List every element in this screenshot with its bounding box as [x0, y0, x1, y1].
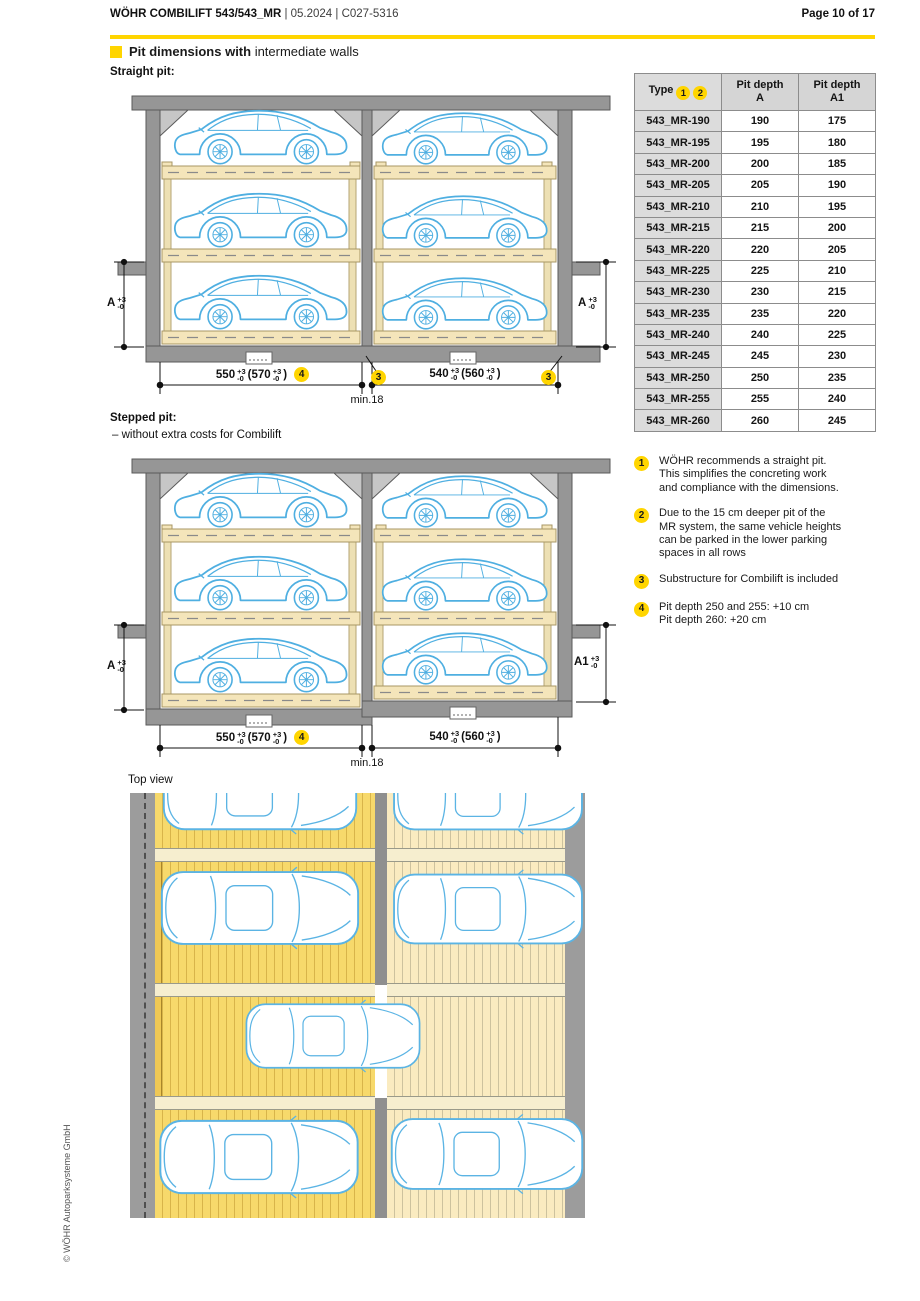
bullet-square-icon — [110, 46, 122, 58]
car-illustration — [175, 276, 347, 329]
cell-a: 255 — [722, 389, 799, 410]
cell-type: 543_MR-220 — [635, 239, 722, 260]
page-number: Page 10 of 17 — [801, 8, 875, 20]
cell-a1: 190 — [799, 175, 876, 196]
car-illustration — [175, 474, 347, 527]
straight-pit-drawing — [110, 84, 620, 414]
table-row: 543_MR-250250235 — [635, 367, 876, 388]
min-wall-thickness: min.18 — [337, 757, 397, 769]
stepped-pit-label: Stepped pit: — [110, 412, 176, 424]
car-illustration — [175, 194, 347, 247]
stepped-pit-drawing — [110, 447, 620, 777]
document-title-meta: | 05.2024 | C027-5316 — [281, 8, 398, 20]
cell-a: 200 — [722, 153, 799, 174]
straight-pit-diagram: A +3-0 A +3-0 550 +3-0 (570 +3-0 ) 4 540… — [110, 84, 620, 414]
stepped-pit-sublabel: – without extra costs for Combilift — [112, 429, 281, 441]
car-illustration — [383, 278, 547, 329]
car-illustration — [383, 559, 547, 610]
table-row: 543_MR-205205190 — [635, 175, 876, 196]
table-row: 543_MR-240240225 — [635, 324, 876, 345]
cell-type: 543_MR-260 — [635, 410, 722, 431]
document-title: WÖHR COMBILIFT 543/543_MR | 05.2024 | C0… — [110, 8, 398, 20]
table-row: 543_MR-190190175 — [635, 111, 876, 132]
table-row: 543_MR-210210195 — [635, 196, 876, 217]
cell-a: 230 — [722, 282, 799, 303]
table-row: 543_MR-245245230 — [635, 346, 876, 367]
cell-type: 543_MR-250 — [635, 367, 722, 388]
cell-type: 543_MR-210 — [635, 196, 722, 217]
car-illustration — [383, 633, 547, 684]
cell-a1: 220 — [799, 303, 876, 324]
note-2: 2 Due to the 15 cm deeper pit of the MR … — [634, 507, 850, 561]
cell-a: 260 — [722, 410, 799, 431]
page-header: WÖHR COMBILIFT 543/543_MR | 05.2024 | C0… — [110, 8, 875, 20]
car-illustration — [175, 639, 347, 692]
cell-a1: 180 — [799, 132, 876, 153]
cell-type: 543_MR-205 — [635, 175, 722, 196]
table-row: 543_MR-260260245 — [635, 410, 876, 431]
cell-type: 543_MR-215 — [635, 217, 722, 238]
cell-type: 543_MR-190 — [635, 111, 722, 132]
dim-bay-width-left: 550 +3-0 (570 +3-0 ) 4 — [165, 730, 360, 745]
dim-bay-width-left: 550 +3-0 (570 +3-0 ) 4 — [165, 367, 360, 382]
cars — [175, 111, 547, 329]
cell-a: 210 — [722, 196, 799, 217]
table-row: 543_MR-235235220 — [635, 303, 876, 324]
callout-4: 4 — [294, 730, 309, 745]
cell-a1: 205 — [799, 239, 876, 260]
callout-2: 2 — [693, 86, 707, 100]
cell-a: 205 — [722, 175, 799, 196]
dim-pit-depth-right: A +3-0 — [578, 296, 597, 310]
cell-a1: 230 — [799, 346, 876, 367]
cell-a: 235 — [722, 303, 799, 324]
note-1: 1 WÖHR recommends a straight pit. This s… — [634, 455, 850, 495]
cell-a1: 210 — [799, 260, 876, 281]
cell-type: 543_MR-225 — [635, 260, 722, 281]
cell-a: 195 — [722, 132, 799, 153]
section-title: Pit dimensions with intermediate walls — [110, 44, 359, 59]
header-rule — [110, 35, 875, 39]
cell-a: 190 — [722, 111, 799, 132]
cell-type: 543_MR-240 — [635, 324, 722, 345]
cell-a1: 195 — [799, 196, 876, 217]
copyright-text: © WÖHR Autoparksysteme GmbH — [62, 1124, 72, 1262]
col-header-pit-depth-a1: Pit depthA1 — [799, 74, 876, 111]
car-illustration — [175, 557, 347, 610]
cell-a1: 200 — [799, 217, 876, 238]
car-illustration — [394, 793, 582, 834]
top-view-cars — [130, 793, 585, 1218]
callout-1: 1 — [676, 86, 690, 100]
note-4: 4 Pit depth 250 and 255: +10 cm Pit dept… — [634, 601, 850, 628]
cell-a1: 215 — [799, 282, 876, 303]
footnotes: 1 WÖHR recommends a straight pit. This s… — [634, 455, 850, 640]
car-illustration — [162, 867, 358, 949]
callout-4: 4 — [294, 367, 309, 382]
datasheet-page: WÖHR COMBILIFT 543/543_MR | 05.2024 | C0… — [0, 0, 920, 1301]
cell-type: 543_MR-200 — [635, 153, 722, 174]
cell-type: 543_MR-245 — [635, 346, 722, 367]
cell-type: 543_MR-255 — [635, 389, 722, 410]
section-title-text: Pit dimensions with intermediate walls — [129, 44, 359, 59]
note-text: Substructure for Combilift is included — [659, 573, 838, 589]
dim-pit-depth-right: A1 +3-0 — [574, 655, 599, 669]
table-row: 543_MR-200200185 — [635, 153, 876, 174]
cell-a1: 225 — [799, 324, 876, 345]
callout-4: 4 — [634, 602, 649, 617]
cell-a1: 245 — [799, 410, 876, 431]
cell-a: 250 — [722, 367, 799, 388]
callout-1: 1 — [634, 456, 649, 471]
note-text: Due to the 15 cm deeper pit of the MR sy… — [659, 507, 841, 561]
note-text: WÖHR recommends a straight pit. This sim… — [659, 455, 839, 495]
stepped-pit-diagram: A +3-0 A1 +3-0 550 +3-0 (570 +3-0 ) 4 54… — [110, 447, 620, 777]
cell-a1: 185 — [799, 153, 876, 174]
col-header-pit-depth-a: Pit depthA — [722, 74, 799, 111]
top-view-diagram — [130, 793, 585, 1218]
note-text: Pit depth 250 and 255: +10 cm Pit depth … — [659, 601, 809, 628]
table-row: 543_MR-220220205 — [635, 239, 876, 260]
car-illustration — [175, 111, 347, 164]
callout-3: 3 — [541, 370, 556, 385]
dim-pit-depth-left: A +3-0 — [107, 659, 126, 673]
car-illustration — [394, 870, 582, 948]
note-3: 3 Substructure for Combilift is included — [634, 573, 850, 589]
cell-a: 245 — [722, 346, 799, 367]
table-row: 543_MR-230230215 — [635, 282, 876, 303]
table-row: 543_MR-215215200 — [635, 217, 876, 238]
cell-a1: 175 — [799, 111, 876, 132]
car-illustration — [383, 196, 547, 247]
callout-3: 3 — [634, 574, 649, 589]
callout-3: 3 — [371, 370, 386, 385]
min-wall-thickness: min.18 — [337, 394, 397, 406]
cell-a: 220 — [722, 239, 799, 260]
dim-bay-width-right: 540 +3-0 (560 +3-0 ) — [372, 730, 558, 744]
cell-a1: 235 — [799, 367, 876, 388]
car-illustration — [392, 1114, 582, 1193]
car-illustration — [164, 793, 356, 834]
table-row: 543_MR-255255240 — [635, 389, 876, 410]
cell-a1: 240 — [799, 389, 876, 410]
straight-pit-label: Straight pit: — [110, 66, 175, 78]
car-illustration — [383, 476, 547, 527]
col-header-type: Type12 — [635, 74, 722, 111]
cell-type: 543_MR-195 — [635, 132, 722, 153]
callout-2: 2 — [634, 508, 649, 523]
pit-depth-table-wrap: Type12 Pit depthA Pit depthA1 543_MR-190… — [634, 73, 876, 432]
table-row: 543_MR-195195180 — [635, 132, 876, 153]
cell-a: 225 — [722, 260, 799, 281]
cell-type: 543_MR-235 — [635, 303, 722, 324]
cell-a: 240 — [722, 324, 799, 345]
top-view-label: Top view — [128, 774, 173, 786]
car-illustration — [160, 1116, 357, 1198]
car-illustration — [246, 1000, 419, 1072]
pit-depth-table: Type12 Pit depthA Pit depthA1 543_MR-190… — [634, 73, 876, 432]
document-title-bold: WÖHR COMBILIFT 543/543_MR — [110, 8, 281, 20]
table-header-row: Type12 Pit depthA Pit depthA1 — [635, 74, 876, 111]
dim-bay-width-right: 540 +3-0 (560 +3-0 ) — [372, 367, 558, 381]
cell-type: 543_MR-230 — [635, 282, 722, 303]
dim-pit-depth-left: A +3-0 — [107, 296, 126, 310]
cars — [175, 474, 547, 692]
car-illustration — [383, 113, 547, 164]
table-row: 543_MR-225225210 — [635, 260, 876, 281]
cell-a: 215 — [722, 217, 799, 238]
